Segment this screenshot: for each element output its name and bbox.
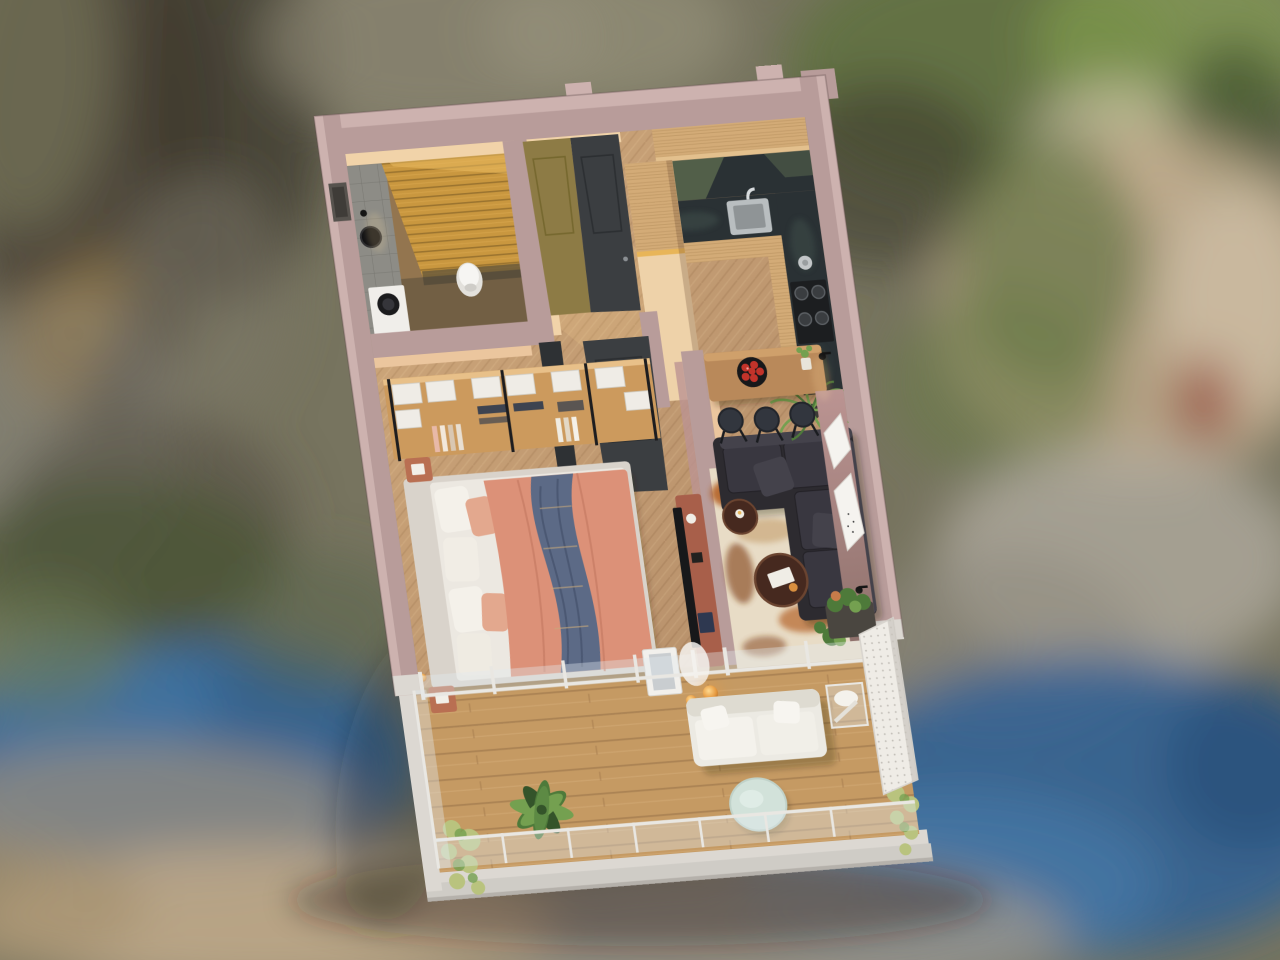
- outdoor-sofa: [685, 688, 837, 776]
- washing-machine: [368, 285, 411, 338]
- bedside-bench-top: [404, 457, 433, 483]
- glass-side-table: [826, 683, 868, 728]
- floor-plan-render: [0, 0, 1280, 960]
- double-bed: [403, 461, 662, 693]
- scene: [0, 0, 1280, 960]
